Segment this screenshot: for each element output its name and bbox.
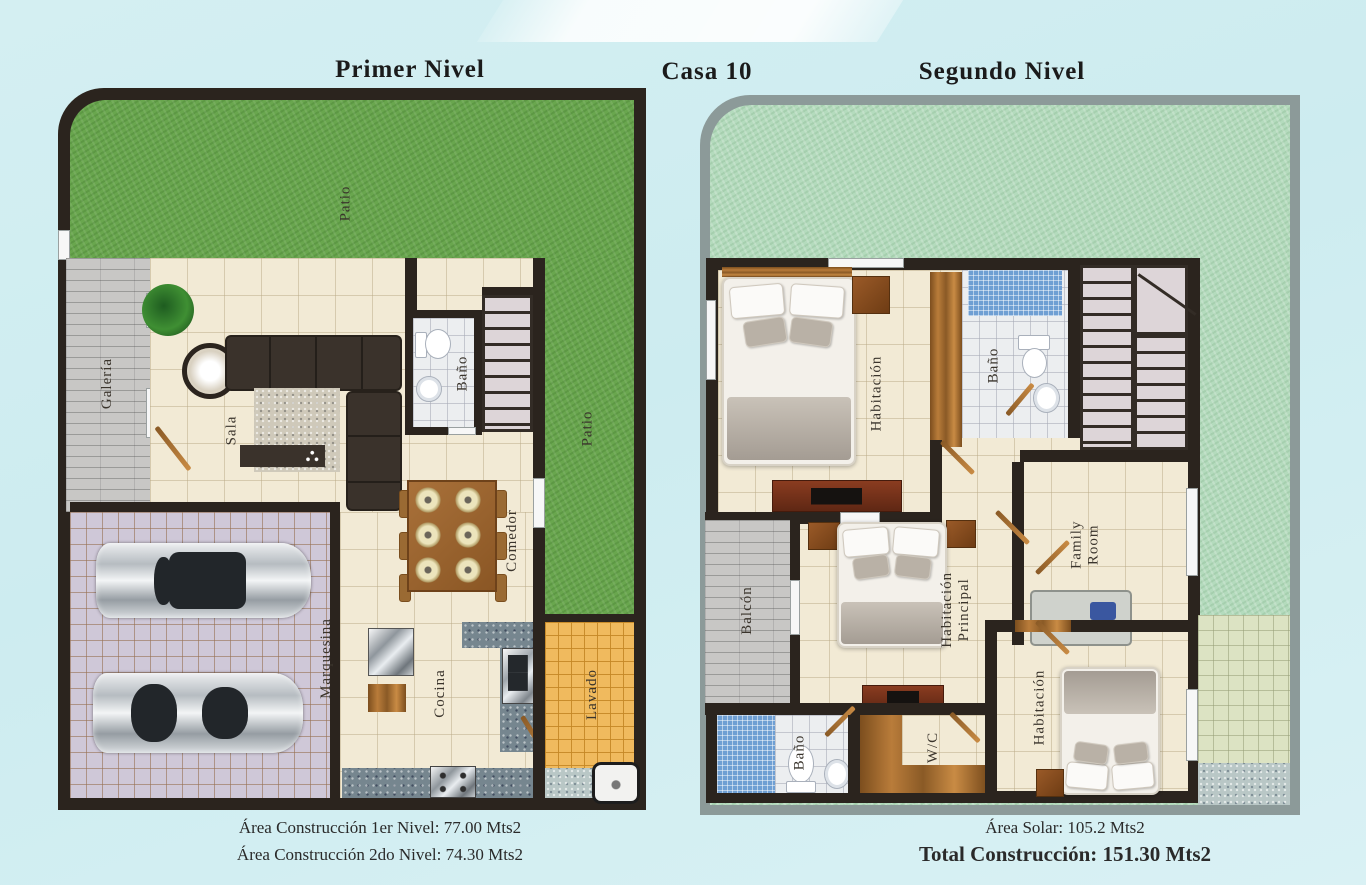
patio-top-lawn: [70, 100, 634, 258]
wall: [930, 440, 942, 524]
wall: [848, 715, 860, 793]
plate: [455, 557, 481, 583]
wall: [1068, 270, 1080, 438]
bathroom-door-gap: [448, 427, 476, 435]
sink: [416, 376, 442, 402]
blanket: [727, 397, 852, 460]
window: [706, 300, 716, 380]
pillow: [894, 554, 932, 580]
wall: [533, 258, 545, 622]
solar-area-line: Área Solar: 105.2 Mts2: [840, 818, 1290, 838]
plate: [455, 522, 481, 548]
toilet-bowl: [788, 745, 814, 783]
first-floor-plan: Patio Galería Sala Baño Patio: [58, 88, 646, 810]
car: [93, 673, 303, 753]
balcony-door-gap: [790, 580, 800, 635]
nightstand: [946, 520, 976, 548]
background-highlight-band: [477, 0, 903, 42]
car-rear-glass: [202, 687, 248, 738]
car-windshield: [131, 684, 177, 742]
toilet-bowl: [1022, 348, 1047, 378]
wall: [70, 502, 340, 512]
wall: [1020, 450, 1188, 462]
kitchen-counter: [462, 622, 533, 648]
plate: [415, 557, 441, 583]
window: [1186, 689, 1198, 761]
bidet-sink: [1033, 383, 1060, 413]
first-floor-title: Primer Nivel: [300, 56, 520, 84]
wall: [330, 512, 340, 798]
pillow: [789, 283, 845, 319]
nightstand: [808, 522, 840, 550]
comedor-door-gap: [533, 478, 545, 528]
terrace-walkway: [1198, 763, 1290, 805]
tv-console: [240, 445, 325, 467]
toilet-bowl: [425, 329, 451, 359]
galeria-floor: [66, 258, 150, 512]
toilet-tank: [786, 781, 816, 793]
second-floor-title: Segundo Nivel: [882, 58, 1122, 86]
first-floor-area-line1: Área Construcción 1er Nivel: 77.00 Mts2: [160, 818, 600, 838]
terrace-door-gap: [1186, 488, 1198, 576]
nightstand: [1036, 769, 1064, 797]
wall: [1012, 462, 1024, 645]
car-windshield: [154, 557, 173, 605]
bed: [1060, 667, 1160, 795]
floor-plan-sheet: Primer Nivel Casa 10 Segundo Nivel Patio…: [0, 0, 1366, 885]
staircase-flight: [1080, 265, 1134, 450]
family-sofa: [1030, 590, 1132, 646]
second-floor-plan: Habitación Baño Family Room Balc: [700, 95, 1300, 815]
shower-mosaic: [968, 270, 1062, 316]
pillow: [1065, 761, 1109, 791]
blanket: [841, 602, 943, 643]
house-title: Casa 10: [627, 58, 787, 86]
patio-right-lawn: [545, 258, 634, 622]
headboard: [722, 267, 852, 277]
shower-mosaic: [717, 715, 775, 793]
wall: [482, 287, 533, 295]
plate: [415, 522, 441, 548]
plate: [455, 487, 481, 513]
pillow: [742, 316, 788, 348]
pillow: [1113, 741, 1149, 765]
master-bed: [837, 522, 947, 648]
pillow: [892, 526, 940, 558]
pillow: [729, 283, 786, 320]
pillow: [1111, 761, 1155, 791]
plate: [415, 487, 441, 513]
terrace-tiles: [1198, 615, 1290, 763]
fridge: [368, 628, 414, 676]
nightstand: [852, 276, 890, 314]
bed: [722, 277, 856, 466]
cabinet: [368, 684, 406, 712]
car-body: [93, 673, 303, 753]
wardrobe: [930, 272, 962, 447]
plant-icon: [142, 284, 194, 336]
sofa-horizontal: [225, 335, 402, 391]
pillow: [788, 316, 833, 348]
cushion: [1090, 602, 1116, 620]
car-cabin: [169, 552, 246, 609]
wall: [533, 622, 545, 798]
car: [96, 543, 311, 618]
washing-machine: [592, 762, 640, 804]
staircase: [482, 295, 533, 432]
sink: [824, 759, 850, 789]
wall: [533, 614, 634, 622]
staircase-flight: [1134, 335, 1188, 450]
stove: [430, 766, 476, 798]
kitchen-sink: [502, 648, 534, 704]
window: [58, 230, 70, 260]
pillow: [852, 554, 891, 581]
sofa-vertical: [346, 391, 402, 511]
wall: [405, 258, 417, 318]
blanket: [1064, 671, 1156, 713]
dining-table: [407, 480, 497, 592]
wall: [985, 620, 997, 793]
first-floor-area-line2: Área Construcción 2do Nivel: 74.30 Mts2: [160, 845, 600, 865]
total-construction-line: Total Construcción: 151.30 Mts2: [830, 842, 1300, 867]
dresser-tv: [772, 480, 902, 512]
balcon-floor: [705, 520, 790, 703]
